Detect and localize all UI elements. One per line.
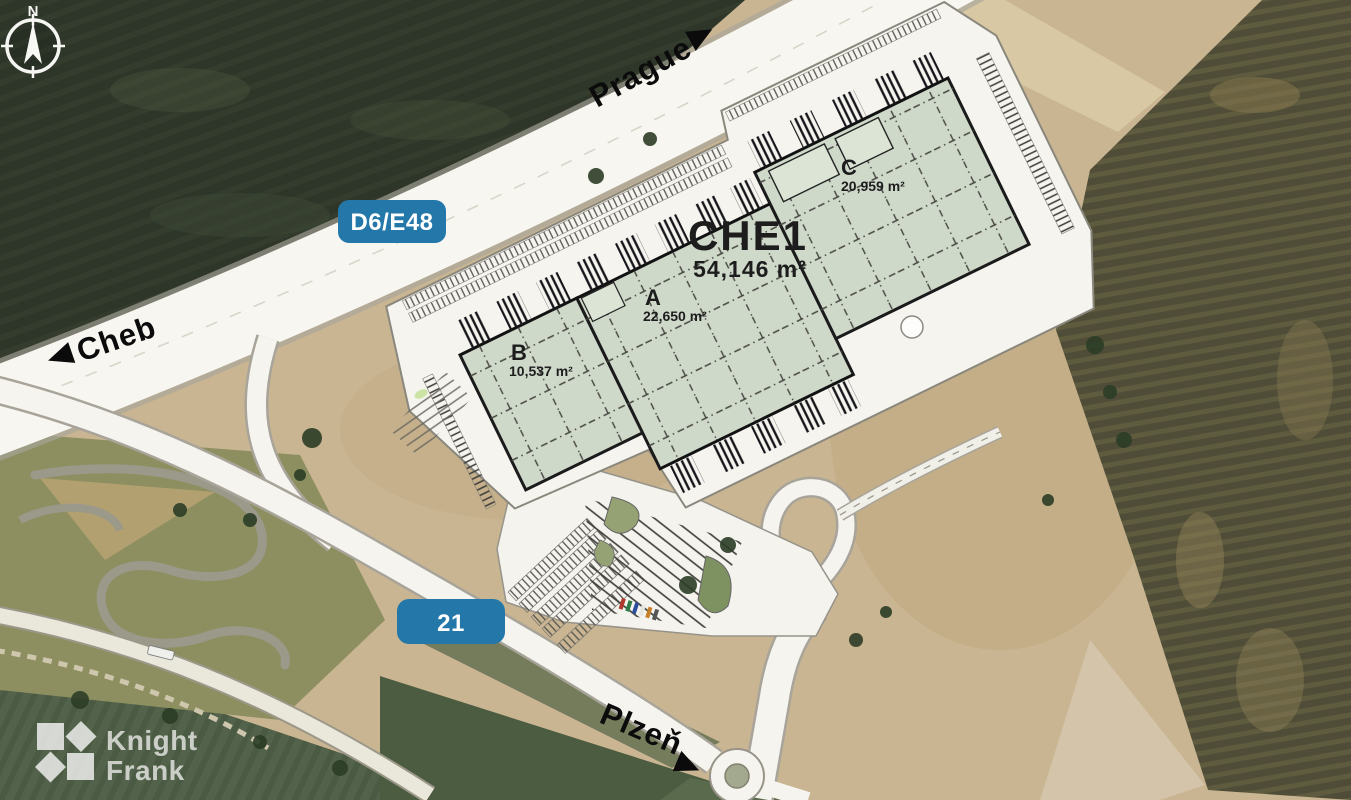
field-mottle [150,193,330,237]
brand-name-line1: Knight [106,725,198,756]
field-mottle [1176,512,1224,608]
aerial-map-canvas: Prague Cheb Plzeň D6/E48 21 CHE1 54,146 … [0,0,1351,800]
unit-a-label[interactable]: A [645,285,661,310]
roundabout [710,749,764,800]
field-mottle [350,100,510,140]
unit-c-label[interactable]: C [841,155,857,180]
site-total-area-label: 54,146 m² [693,256,807,282]
field-mottle [1236,628,1304,732]
unit-c-area: 20,959 m² [841,178,905,194]
unit-b-label[interactable]: B [511,340,527,365]
site-plan-map: Prague Cheb Plzeň D6/E48 21 CHE1 54,146 … [0,0,1351,800]
motorway-route-badge: D6/E48 [338,200,446,243]
water-tank [901,316,923,338]
route21-badge: 21 [397,599,505,644]
unit-a-area: 22,650 m² [643,308,707,324]
motorway-badge-label: D6/E48 [350,209,433,236]
field-mottle [1210,77,1300,113]
site-name-label: CHE1 [688,212,808,259]
field-mottle [110,68,250,112]
compass-north-label: N [28,3,39,20]
brand-name-line2: Frank [106,755,185,786]
route21-badge-label: 21 [437,610,465,637]
unit-b-area: 10,537 m² [509,363,573,379]
field-mottle [1277,320,1333,440]
